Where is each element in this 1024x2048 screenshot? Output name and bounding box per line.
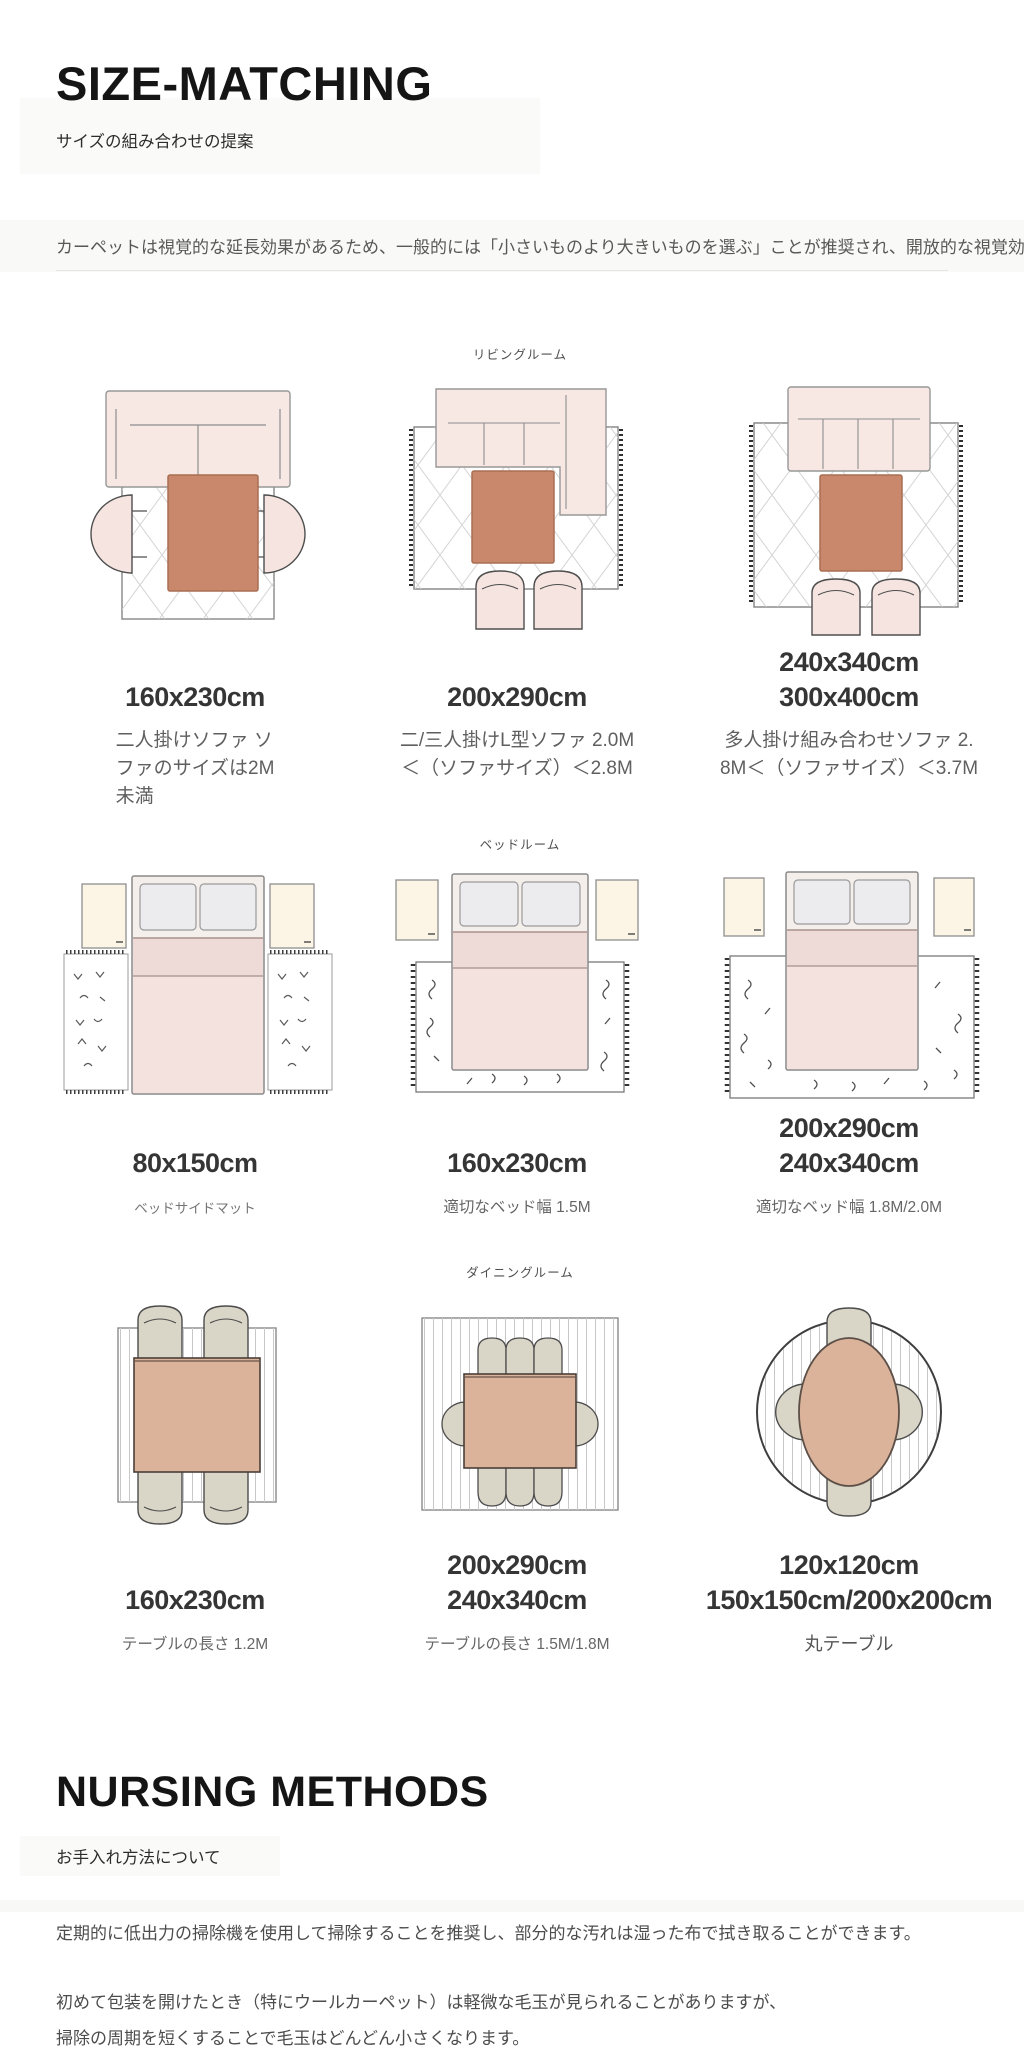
dining-table [134,1358,260,1472]
size-label: 80x150cm [30,1107,360,1181]
size-label: 200x290cm 240x340cm [352,1542,682,1618]
nursing-methods-subtitle: お手入れ方法について [56,1844,221,1868]
dining-table [464,1374,576,1468]
size-description: 二/三人掛けL型ソファ 2.0M ＜（ソファサイズ）＜2.8M [352,727,682,783]
living-two-seat-sofa-illustration [30,375,360,637]
size-description: 適切なベッド幅 1.8M/2.0M [684,1197,1014,1219]
size-label: 160x230cm [352,1107,682,1181]
living-item-1: 160x230cm 二人掛けソファ ソ ファのサイズは2M 未満 [30,375,360,811]
oval-table [799,1338,899,1486]
sofa [788,387,930,471]
chair [872,579,920,635]
dining-table-8-chairs-illustration [352,1300,682,1530]
size-description: ベッドサイドマット [30,1199,360,1219]
size-description: 二人掛けソファ ソ ファのサイズは2M 未満 [116,727,275,811]
bedside-mat-illustration [30,868,360,1103]
dining-item-3: 120x120cm 150x150cm/200x200cm 丸テーブル [684,1300,1014,1656]
side-rug-right [268,952,332,1092]
bed [786,872,918,1070]
nightstand [396,880,438,940]
nightstand [596,880,638,940]
chair [812,579,860,635]
armchair-left [91,495,132,573]
nightstand [82,884,126,948]
nightstand [270,884,314,948]
dining-table-4-chairs-illustration [30,1300,360,1530]
care-paragraph-3: 掃除の周期を短くすることで毛玉はどんどん小さくなります。 [56,2024,1016,2048]
intro-divider [56,270,948,271]
chair [534,571,582,629]
size-label: 200x290cm 240x340cm [684,1107,1014,1181]
dining-room-section-header: ダイニングルーム [30,1262,1010,1281]
size-description: 多人掛け組み合わせソファ 2. 8M＜（ソファサイズ）＜3.7M [684,727,1014,783]
intro-paragraph: カーペットは視覚的な延長効果があるため、一般的には「小さいものより大きいものを選… [56,233,1024,258]
size-label: 120x120cm 150x150cm/200x200cm [684,1542,1014,1618]
size-matching-subtitle: サイズの組み合わせの提案 [56,128,254,152]
care-band [0,1900,1024,1912]
size-label: 240x340cm 300x400cm [684,641,1014,715]
care-paragraph-2: 初めて包装を開けたとき（特にウールカーペット）は軽微な毛玉が見られることがありま… [56,1988,1016,2013]
size-label: 200x290cm [352,641,682,715]
living-item-2: 200x290cm 二/三人掛けL型ソファ 2.0M ＜（ソファサイズ）＜2.8… [352,375,682,783]
bedroom-item-3: 200x290cm 240x340cm 適切なベッド幅 1.8M/2.0M [684,868,1014,1219]
armchair-right [264,495,305,573]
dining-item-2: 200x290cm 240x340cm テーブルの長さ 1.5M/1.8M [352,1300,682,1656]
bed [452,874,588,1070]
living-item-3: 240x340cm 300x400cm 多人掛け組み合わせソファ 2. 8M＜（… [684,375,1014,783]
side-rug-left [64,952,128,1092]
living-combo-sofa-illustration [684,375,1014,637]
chair [138,1306,182,1364]
size-label: 160x230cm [30,641,360,715]
size-description: テーブルの長さ 1.2M [30,1634,360,1656]
bedroom-item-1: 80x150cm ベッドサイドマット [30,868,360,1219]
bedroom-large-rug-illustration [684,868,1014,1103]
coffee-table [820,475,902,571]
nursing-methods-title: NURSING METHODS [56,1768,489,1817]
coffee-table [168,475,258,591]
bedroom-rug-illustration [352,868,682,1103]
bedroom-section-header: ベッドルーム [30,834,1010,853]
size-description: 適切なベッド幅 1.5M [352,1197,682,1219]
chair [204,1466,248,1524]
bed [132,876,264,1094]
product-detail-page: SIZE-MATCHING サイズの組み合わせの提案 カーペットは視覚的な延長効… [0,0,1024,2048]
chair [138,1466,182,1524]
bedroom-item-2: 160x230cm 適切なベッド幅 1.5M [352,868,682,1219]
chair [204,1306,248,1364]
dining-item-1: 160x230cm テーブルの長さ 1.2M [30,1300,360,1656]
size-description: テーブルの長さ 1.5M/1.8M [352,1634,682,1656]
size-matching-title: SIZE-MATCHING [56,56,432,111]
care-paragraph-1: 定期的に低出力の掃除機を使用して掃除することを推奨し、部分的な汚れは湿った布で拭… [56,1919,1016,1944]
living-l-sofa-illustration [352,375,682,637]
coffee-table [472,471,554,563]
round-table-illustration [684,1300,1014,1530]
nightstand [724,878,764,936]
chair [476,571,524,629]
size-label: 160x230cm [30,1542,360,1618]
nightstand [934,878,974,936]
living-room-section-header: リビングルーム [30,344,1010,363]
size-description: 丸テーブル [684,1632,1014,1656]
